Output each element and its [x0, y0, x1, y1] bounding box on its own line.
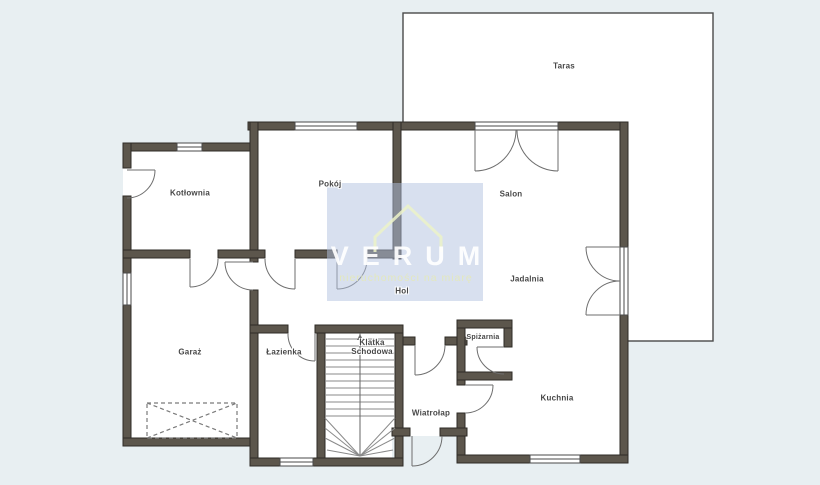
floor-plan-drawing: VERUM nieruchomości na miarę	[0, 0, 820, 485]
watermark: VERUM nieruchomości na miarę	[327, 183, 493, 301]
floor-plan: VERUM nieruchomości na miarę Taras Kotło…	[0, 0, 820, 485]
watermark-tagline: nieruchomości na miarę	[339, 272, 472, 284]
watermark-brand: VERUM	[331, 241, 494, 271]
